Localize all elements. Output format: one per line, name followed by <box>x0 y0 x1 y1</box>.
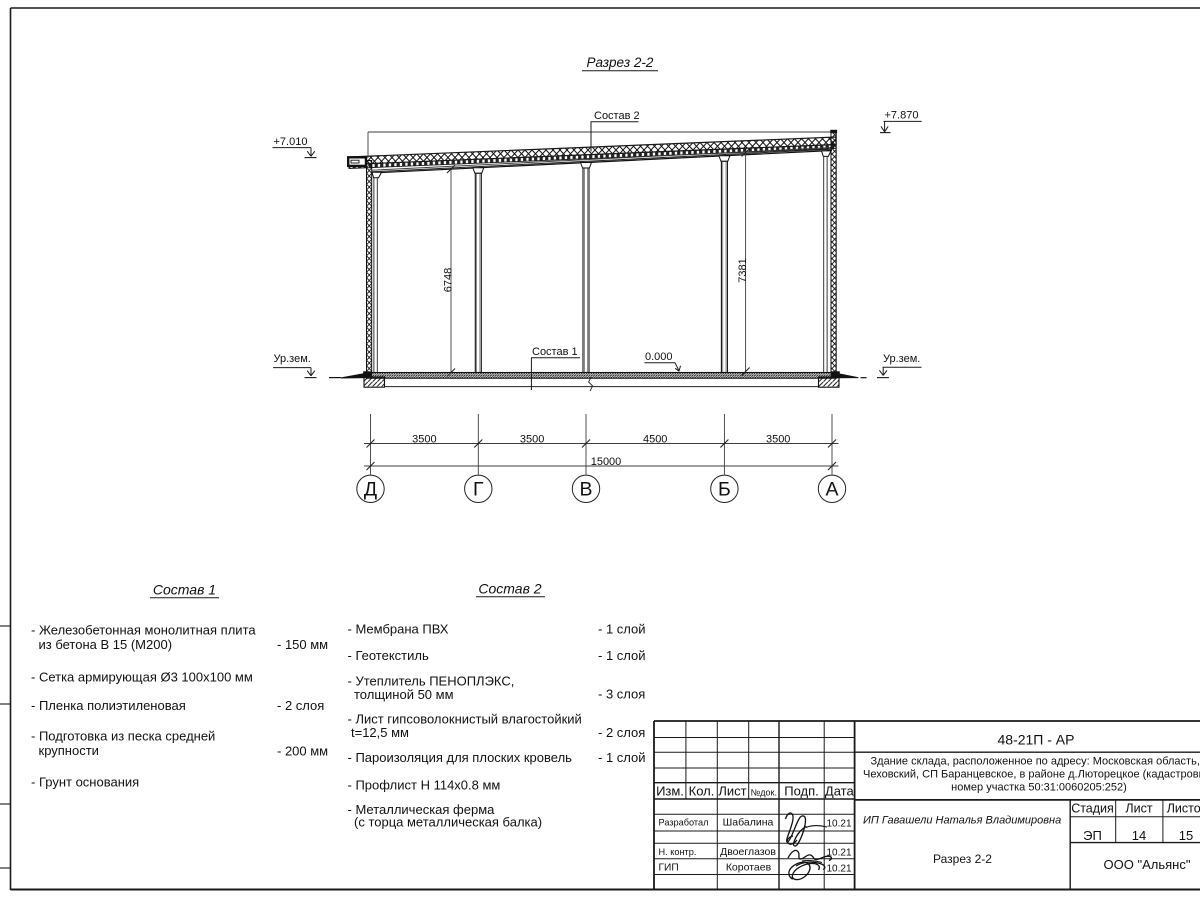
svg-text:- 3 слоя: - 3 слоя <box>598 687 645 702</box>
svg-text:ЭП: ЭП <box>1083 828 1102 843</box>
svg-text:Д: Д <box>364 479 377 501</box>
svg-text:+7.870: +7.870 <box>885 110 919 122</box>
svg-text:Г: Г <box>473 479 484 501</box>
svg-text:6748: 6748 <box>442 268 454 292</box>
svg-text:- Грунт основания: - Грунт основания <box>31 775 139 790</box>
svg-text:Подп.: Подп. <box>784 784 819 799</box>
svg-text:- Мембрана ПВХ: - Мембрана ПВХ <box>348 622 449 637</box>
svg-text:Изм.: Изм. <box>656 784 684 799</box>
svg-text:Разработал: Разработал <box>659 818 709 828</box>
svg-text:- 1 слой: - 1 слой <box>598 750 646 765</box>
svg-text:№док.: №док. <box>751 788 777 798</box>
svg-text:- 1 слой: - 1 слой <box>598 622 646 637</box>
svg-text:ООО "Альянс": ООО "Альянс" <box>1104 857 1191 872</box>
svg-text:t=12,5 мм: t=12,5 мм <box>351 725 409 740</box>
svg-text:Лист: Лист <box>718 784 746 799</box>
svg-text:толщиной 50 мм: толщиной 50 мм <box>354 687 454 702</box>
svg-text:Ур.зем.: Ур.зем. <box>274 353 311 365</box>
svg-text:10.21: 10.21 <box>826 819 851 830</box>
svg-text:15: 15 <box>1179 828 1193 843</box>
svg-text:- Железобетонная монолитная п: - Железобетонная монолитная плита <box>31 623 256 638</box>
svg-text:15000: 15000 <box>591 456 622 468</box>
svg-text:А: А <box>825 479 838 501</box>
svg-text:10.21: 10.21 <box>826 863 851 874</box>
svg-text:Шабалина: Шабалина <box>723 817 774 829</box>
svg-text:Листов: Листов <box>1167 801 1200 815</box>
svg-text:Разрез 2-2: Разрез 2-2 <box>587 55 654 70</box>
svg-text:Чеховский, СП Баранцевское, в: Чеховский, СП Баранцевское, в районе д.Л… <box>863 769 1200 781</box>
svg-text:ИП Гавашели Наталья Владимиров: ИП Гавашели Наталья Владимировна <box>863 815 1061 827</box>
svg-text:крупности: крупности <box>39 743 99 758</box>
svg-text:- 200 мм: - 200 мм <box>277 744 328 759</box>
svg-text:Б: Б <box>718 479 731 501</box>
svg-text:Здание склада, расположенное п: Здание склада, расположенное по адресу: … <box>871 756 1200 768</box>
svg-text:- 2 слоя: - 2 слоя <box>277 698 324 713</box>
svg-text:- Подготовка из песка средней: - Подготовка из песка средней <box>31 729 215 744</box>
svg-text:- Геотекстиль: - Геотекстиль <box>348 648 429 663</box>
svg-text:48-21П - АР: 48-21П - АР <box>998 732 1075 748</box>
svg-text:Состав 2: Состав 2 <box>478 581 541 597</box>
svg-text:- 2 слоя: - 2 слоя <box>598 725 645 740</box>
svg-text:В: В <box>579 479 592 501</box>
svg-text:Состав 2: Состав 2 <box>594 110 640 122</box>
svg-text:3500: 3500 <box>766 433 790 445</box>
svg-text:Коротаев: Коротаев <box>726 862 772 874</box>
svg-text:14: 14 <box>1132 828 1146 843</box>
svg-text:Н. контр.: Н. контр. <box>659 847 697 857</box>
svg-text:Лист: Лист <box>1125 801 1152 815</box>
svg-text:4500: 4500 <box>643 433 667 445</box>
svg-text:Разрез 2-2: Разрез 2-2 <box>933 852 992 866</box>
svg-text:3500: 3500 <box>520 433 544 445</box>
svg-text:+7.010: +7.010 <box>274 136 308 148</box>
svg-text:- Пленка полиэтиленовая: - Пленка полиэтиленовая <box>31 698 186 713</box>
svg-text:из бетона В 15 (М200): из бетона В 15 (М200) <box>39 637 173 652</box>
svg-text:- 150 мм: - 150 мм <box>277 637 328 652</box>
svg-text:Ур.зем.: Ур.зем. <box>883 353 920 365</box>
svg-text:- Пароизоляция для плоских кро: - Пароизоляция для плоских кровель <box>348 750 573 765</box>
svg-text:- Сетка армирующая Ø3 100х100: - Сетка армирующая Ø3 100х100 мм <box>31 670 253 685</box>
svg-text:номер участка 50:31:0060205:25: номер участка 50:31:0060205:252) <box>951 782 1127 794</box>
svg-text:Дата: Дата <box>825 784 855 799</box>
svg-text:Стадия: Стадия <box>1071 801 1114 815</box>
svg-text:0.000: 0.000 <box>645 351 673 363</box>
svg-text:7381: 7381 <box>737 258 749 282</box>
svg-text:- 1 слой: - 1 слой <box>598 648 646 663</box>
svg-text:- Профлист Н 114х0.8 мм: - Профлист Н 114х0.8 мм <box>348 778 501 793</box>
svg-text:Двоеглазов: Двоеглазов <box>720 846 776 858</box>
svg-text:3500: 3500 <box>412 433 436 445</box>
svg-text:(с торца металлическая балка): (с торца металлическая балка) <box>354 815 542 830</box>
svg-text:ГИП: ГИП <box>659 863 679 874</box>
svg-text:Состав 1: Состав 1 <box>532 346 578 358</box>
svg-text:Состав 1: Состав 1 <box>153 582 216 598</box>
svg-text:Кол.: Кол. <box>689 784 715 799</box>
